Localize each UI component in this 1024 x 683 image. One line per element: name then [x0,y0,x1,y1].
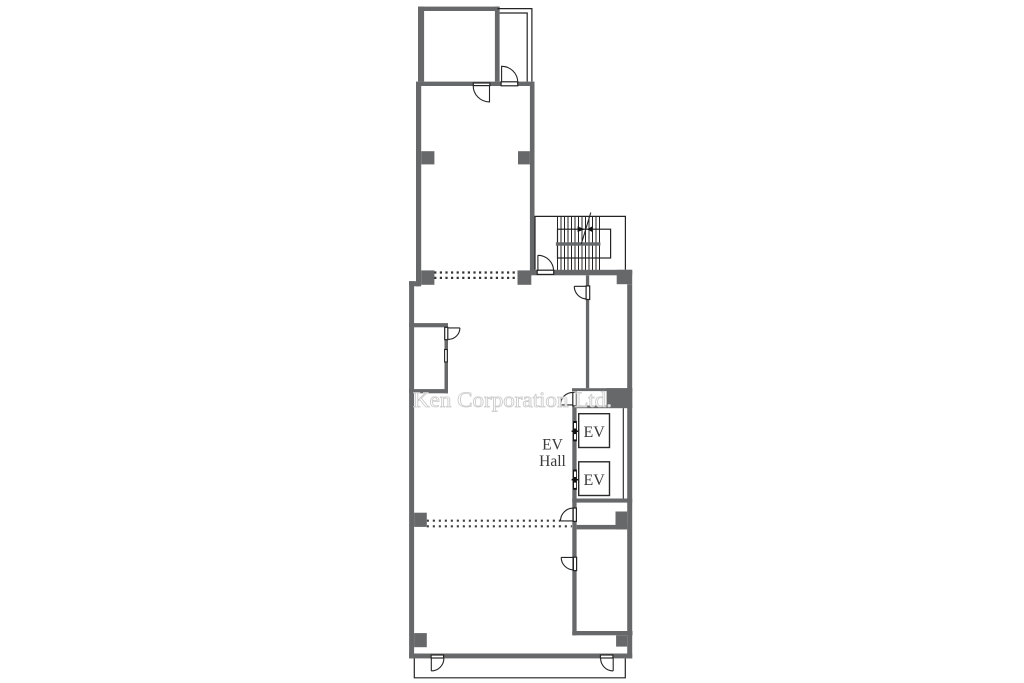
svg-text:Hall: Hall [539,453,566,470]
svg-text:EV: EV [584,424,606,441]
svg-text:EV: EV [584,472,606,489]
svg-text:Ken Corporation Ltd.: Ken Corporation Ltd. [413,387,612,412]
svg-text:EV: EV [542,436,563,453]
